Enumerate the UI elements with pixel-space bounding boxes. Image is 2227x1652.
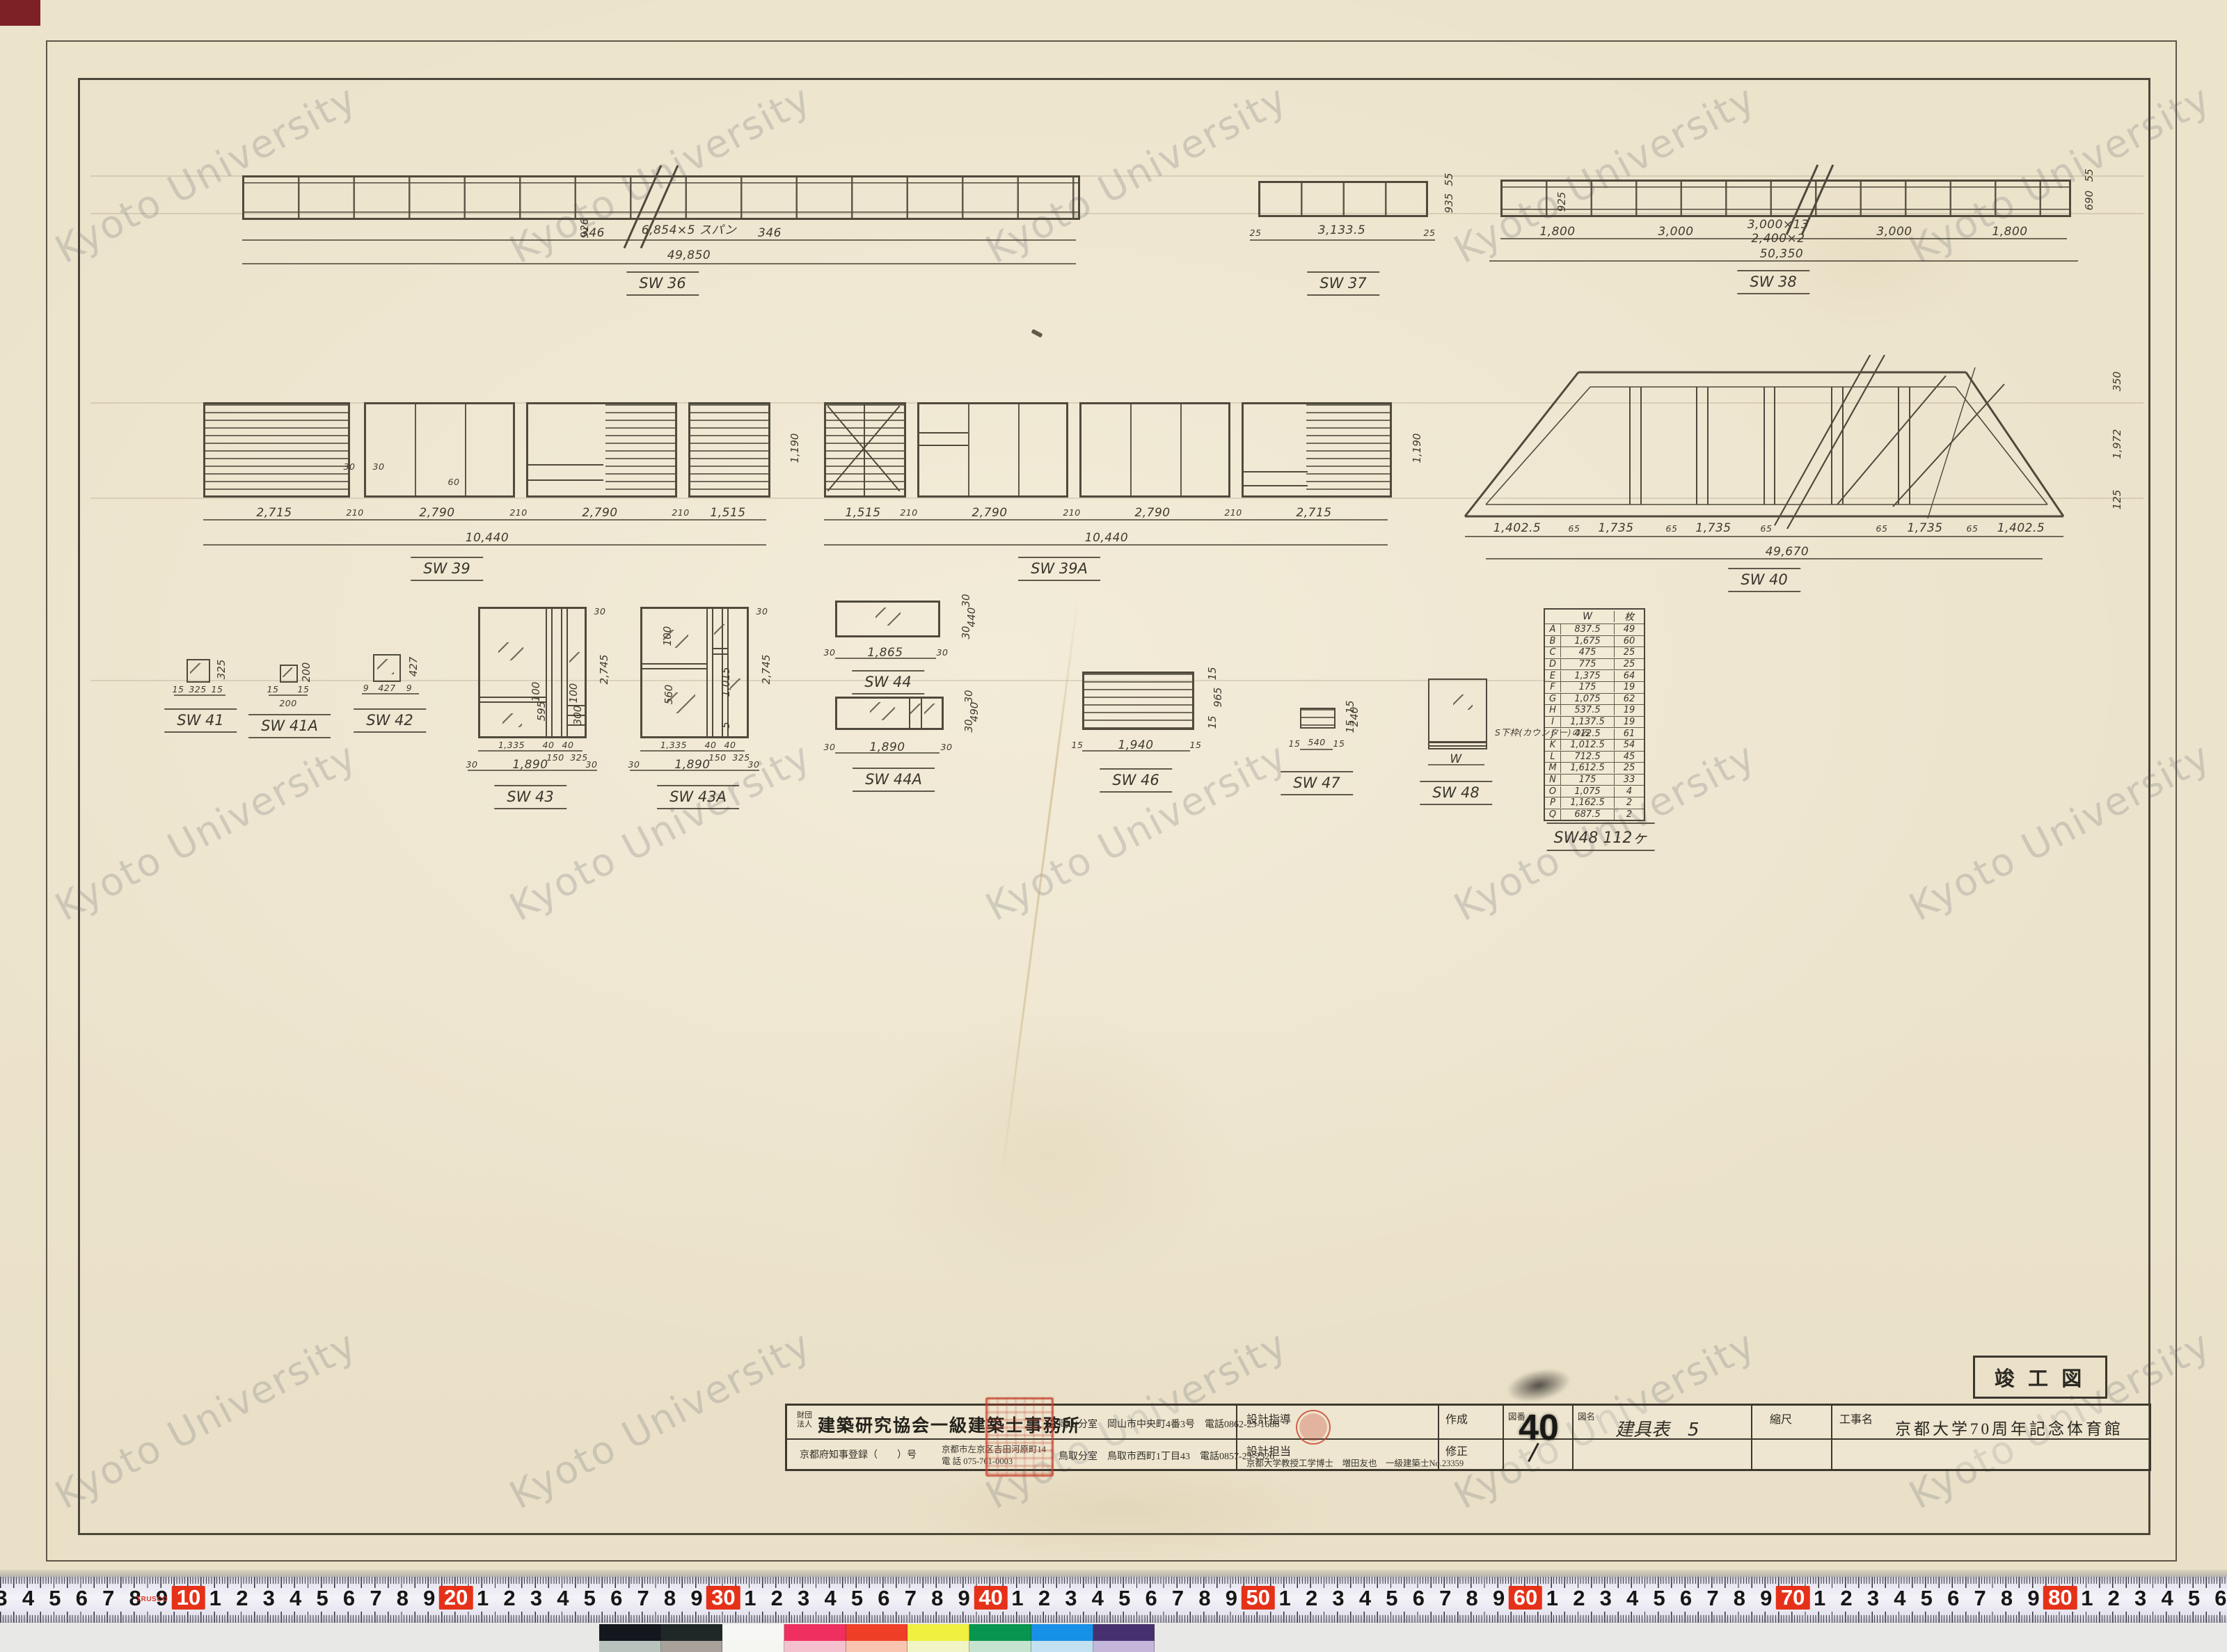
glass-mark <box>870 702 895 720</box>
color-patch <box>846 1624 908 1641</box>
table-cell: A <box>1545 624 1561 635</box>
ruler-number: 5 <box>1921 1587 1933 1610</box>
dimension: 1,972 <box>2111 429 2123 459</box>
dimension: 1,890 <box>674 759 710 772</box>
dimension: 15 <box>1344 720 1356 733</box>
dimension: 2,790 <box>582 507 617 520</box>
dimension-line <box>174 694 225 696</box>
dimension: 15 <box>1072 740 1084 750</box>
ruler-number: 6 <box>343 1587 355 1610</box>
dimension: 5 <box>720 722 732 729</box>
measuring-tape: 3456789101234567892012345678930123456789… <box>0 1577 2227 1623</box>
table-cell: 1,075 <box>1561 694 1615 704</box>
paper-stain <box>870 1009 1232 1301</box>
dimension: 1,865 <box>867 646 903 660</box>
ruler-number: 9 <box>958 1587 970 1610</box>
dimension: 2,790 <box>1134 507 1170 520</box>
dimension: 427 <box>407 657 420 677</box>
dimension: 210 <box>900 508 917 518</box>
dimension: 65 <box>1761 524 1773 534</box>
dimension: 30 <box>594 607 606 617</box>
table-cell: 25 <box>1615 763 1644 773</box>
dimension: 30 <box>962 690 975 703</box>
divider <box>1572 1406 1574 1469</box>
ruler-number: 5 <box>1653 1587 1665 1610</box>
dimension-line <box>1465 536 2063 537</box>
table-cell: 1,075 <box>1561 786 1615 797</box>
dimension: 9 <box>406 683 412 693</box>
table-cell: E <box>1545 671 1561 681</box>
ruler-number: 1 <box>477 1587 489 1610</box>
ruler-number: 7 <box>1974 1587 1986 1610</box>
glass-panel <box>1079 402 1230 498</box>
ruler-number: 9 <box>690 1587 702 1610</box>
dimension: 15 <box>1289 739 1301 749</box>
dimension: 2,400×2 <box>1751 232 1805 246</box>
table-cell: N <box>1545 775 1561 785</box>
mixed-panel <box>526 402 677 498</box>
trapezoid-elevation <box>1448 355 2081 529</box>
dimension: 1,735 <box>1598 522 1633 535</box>
dimension: 200 <box>300 662 312 683</box>
dimension: 325 <box>215 660 228 680</box>
table-cell: Q <box>1545 809 1561 820</box>
table-header-cell: W <box>1561 611 1615 622</box>
table-header-row: W枚 <box>1545 610 1644 624</box>
ruler-number: 6 <box>2214 1587 2226 1610</box>
dimension: 1,015 <box>720 667 732 697</box>
ruler-number: 1 <box>209 1587 221 1610</box>
dimension: 9 <box>363 683 369 693</box>
dimension: 346 <box>581 227 605 240</box>
table-row: P1,162.52 <box>1545 797 1644 809</box>
ruler-number: 4 <box>22 1587 34 1610</box>
glass-panel <box>364 402 515 498</box>
ruler-number: 5 <box>316 1587 328 1610</box>
dimension: 15 <box>298 685 310 694</box>
dimension: 3,000×13 <box>1747 219 1809 232</box>
dimension: 30 <box>628 760 640 770</box>
ruler-number: 5 <box>584 1587 596 1610</box>
dimension-line <box>362 693 419 694</box>
dimension: 40 <box>705 740 717 750</box>
ruler-number: 8 <box>931 1587 943 1610</box>
ruler-decade-number: 40 <box>974 1586 1007 1610</box>
dimension: 1,890 <box>512 759 548 772</box>
color-patch <box>969 1624 1031 1641</box>
dimension: 1,735 <box>1907 522 1942 535</box>
corner-sticker <box>0 0 40 26</box>
drawing-label: SW 47 <box>1281 771 1353 795</box>
color-patch <box>722 1624 784 1641</box>
table-cell: P <box>1545 797 1561 808</box>
dimension: 210 <box>1224 508 1242 518</box>
glass-mark <box>283 667 292 677</box>
ruler-number: 4 <box>557 1587 569 1610</box>
color-patch <box>661 1624 723 1641</box>
dimension: 210 <box>346 508 363 518</box>
ruler-decade-number: 20 <box>439 1586 473 1610</box>
dimension-line <box>1250 239 1435 241</box>
table-cell: O <box>1545 786 1561 797</box>
color-patch <box>722 1641 784 1652</box>
table-cell: 1,375 <box>1561 671 1615 681</box>
drawing-sw40: 350 1,972 125 1,402.5 65 1,735 65 1,735 … <box>1448 327 2192 591</box>
dimension: 65 <box>1876 524 1888 534</box>
table-cell: 54 <box>1615 740 1644 750</box>
table-cell: 775 <box>1561 659 1615 669</box>
dimension: 40 <box>562 740 574 750</box>
ruler-number: 3 <box>1332 1587 1344 1610</box>
table-row: J412.561 <box>1545 727 1644 739</box>
ruler-numbers: 3456789101234567892012345678930123456789… <box>0 1577 2227 1623</box>
table-cell: 1,137.5 <box>1561 717 1615 727</box>
ruler-number: 8 <box>664 1587 676 1610</box>
table-cell: 60 <box>1615 636 1644 646</box>
ruler-number: 2 <box>503 1587 515 1610</box>
schedule-caption: SW48 112ヶ <box>1547 823 1655 851</box>
drawing-sw39a: 1,190 1,515 210 2,790 210 2,790 210 2,71… <box>814 390 1448 591</box>
ruler-number: 1 <box>2081 1587 2093 1610</box>
dimension: 540 <box>1308 738 1325 747</box>
table-cell: I <box>1545 717 1561 727</box>
tape-brand: TRUSCO <box>136 1596 168 1603</box>
dimension: 1,800 <box>1992 225 2027 239</box>
dimension: 15 <box>1206 715 1219 729</box>
color-patch <box>908 1641 969 1652</box>
office-red-stamp <box>985 1397 1054 1477</box>
ruler-number: 4 <box>290 1587 301 1610</box>
ruler-number: 2 <box>1840 1587 1852 1610</box>
louver-panel <box>824 402 906 498</box>
dimension: 2,790 <box>972 507 1007 520</box>
table-cell: 64 <box>1615 671 1644 681</box>
dimension: 15 <box>173 685 184 694</box>
dimension: 2,715 <box>256 507 292 520</box>
ruler-number: 6 <box>1947 1587 1959 1610</box>
ruler-number: 9 <box>1226 1587 1237 1610</box>
tottori-branch: 鳥取分室 鳥取市西町1丁目43 電話0857-23-2320 <box>1059 1449 1274 1463</box>
dimension: 3,000 <box>1876 225 1912 239</box>
drawing-sw46: 15 965 15 15 1,940 15 SW 46 <box>1065 654 1246 800</box>
color-patch <box>969 1641 1031 1652</box>
ruler-number: 3 <box>798 1587 809 1610</box>
table-row: A837.549 <box>1545 624 1644 635</box>
org-prefix-line: 法人 <box>797 1420 812 1429</box>
revised-label: 修正 <box>1445 1442 1468 1459</box>
ruler-number: 3 <box>2134 1587 2146 1610</box>
project-label: 工事名 <box>1839 1410 1873 1427</box>
table-cell: J <box>1545 729 1561 739</box>
color-calibration-row2 <box>599 1641 1155 1652</box>
table-row: C47525 <box>1545 646 1644 658</box>
drawing-sw37: 55 935 25 3,133.5 25 SW 37 <box>1246 167 1475 296</box>
dimension: 210 <box>509 508 527 518</box>
ruler-number: 2 <box>236 1587 248 1610</box>
table-cell: B <box>1545 636 1561 646</box>
color-patch <box>1031 1641 1093 1652</box>
table-row: M1,612.525 <box>1545 762 1644 774</box>
drawing-name-value: 建具表 5 <box>1615 1415 1699 1441</box>
dimension: 30 <box>937 648 949 658</box>
ruler-number: 5 <box>49 1587 61 1610</box>
ruler-number: 5 <box>1118 1587 1130 1610</box>
dimension: 3,000 <box>1658 225 1693 239</box>
drawing-label: SW 41A <box>248 714 331 738</box>
drawing-label: SW 43A <box>657 785 739 809</box>
dimension: 40 <box>724 740 736 750</box>
ruler-number: 3 <box>0 1587 8 1610</box>
table-cell: 19 <box>1615 717 1644 727</box>
glass-mark <box>377 659 394 674</box>
glass-mark <box>190 663 204 676</box>
ruler-number: 3 <box>1065 1587 1077 1610</box>
table-row: G1,07562 <box>1545 693 1644 705</box>
dimension-line <box>478 750 582 752</box>
dimension: 100 <box>530 682 542 702</box>
dimension: 100 <box>567 683 580 704</box>
drawing-sw47: 15 240 15 15 540 15 SW 47 <box>1281 689 1399 800</box>
drawing-sw41a: 200 15 15 200 SW 41A <box>263 646 347 738</box>
color-patch <box>661 1641 723 1652</box>
table-cell: 175 <box>1561 775 1615 785</box>
table-row: E1,37564 <box>1545 669 1644 681</box>
dimension: 1,402.5 <box>1493 522 1541 535</box>
drawing-label: SW 44A <box>853 768 935 792</box>
dimension: 65 <box>1569 524 1580 534</box>
dimension: 55 <box>2083 168 2095 182</box>
dimension: 30 <box>962 719 975 732</box>
ruler-number: 2 <box>1573 1587 1585 1610</box>
table-cell: 175 <box>1561 682 1615 692</box>
sheet-edge-shadow <box>0 1570 2227 1577</box>
ruler-number: 7 <box>905 1587 917 1610</box>
ruler-number: 3 <box>263 1587 275 1610</box>
ruler-number: 8 <box>2001 1587 2013 1610</box>
ruler-number: 9 <box>1493 1587 1505 1610</box>
table-row: H537.519 <box>1545 704 1644 716</box>
glass-mark <box>910 704 921 716</box>
ruler-number: 1 <box>1011 1587 1023 1610</box>
table-cell: G <box>1545 694 1561 704</box>
dimension: 30 <box>960 594 972 607</box>
drawing-label: SW 46 <box>1100 768 1172 793</box>
table-cell: 412.5 <box>1561 729 1615 739</box>
drawing-label: SW 43 <box>494 785 566 809</box>
dimension: 925 <box>1555 192 1568 212</box>
divider <box>1831 1406 1832 1469</box>
table-cell: 19 <box>1615 682 1644 692</box>
dimension: 30 <box>586 760 598 770</box>
created-label: 作成 <box>1445 1410 1468 1427</box>
ruler-number: 6 <box>1680 1587 1692 1610</box>
color-patch <box>846 1641 908 1652</box>
dimension-line <box>242 239 1076 241</box>
dimension: 30 <box>373 462 385 472</box>
table-cell: 49 <box>1615 624 1644 635</box>
ruler-number: 8 <box>1198 1587 1210 1610</box>
dimension: 125 <box>2111 490 2123 510</box>
table-cell: L <box>1545 752 1561 762</box>
table-cell: 25 <box>1615 647 1644 658</box>
table-cell: D <box>1545 659 1561 669</box>
dimension: 3,133.5 <box>1318 224 1365 237</box>
ruler-number: 5 <box>2188 1587 2200 1610</box>
dimension: 100 <box>661 626 674 646</box>
fitting-schedule-table: W枚A837.549B1,67560C47525D77525E1,37564F1… <box>1544 608 1645 821</box>
table-cell: K <box>1545 740 1561 750</box>
dimension-line <box>242 263 1076 264</box>
door-frame <box>640 607 749 738</box>
glass-mark <box>1453 694 1473 710</box>
drawing-label: SW 38 <box>1737 270 1809 294</box>
ruler-number: 4 <box>1626 1587 1638 1610</box>
color-patch <box>784 1641 846 1652</box>
org-prefix: 財団 法人 <box>797 1411 812 1429</box>
design-supervision-label: 設計指導 <box>1246 1410 1291 1427</box>
table-cell: H <box>1545 705 1561 715</box>
table-row: F17519 <box>1545 681 1644 693</box>
ruler-decade-number: 60 <box>1509 1586 1542 1610</box>
ruler-number: 6 <box>76 1587 88 1610</box>
dimension: 25 <box>1250 228 1262 238</box>
table-row: N17533 <box>1545 774 1644 786</box>
ruler-number: 6 <box>610 1587 622 1610</box>
table-cell: M <box>1545 763 1561 773</box>
ruler-number: 1 <box>1814 1587 1825 1610</box>
drawing-label: SW 37 <box>1307 271 1379 296</box>
ruler-number: 8 <box>1734 1587 1745 1610</box>
ruler-number: 4 <box>1894 1587 1905 1610</box>
dimension: 346 <box>758 227 782 240</box>
dimension-total: 50,350 <box>1760 248 1803 261</box>
ruler-number: 3 <box>1867 1587 1879 1610</box>
table-row: Q687.52 <box>1545 809 1644 820</box>
table-cell: 712.5 <box>1561 752 1615 762</box>
table-cell: 1,162.5 <box>1561 797 1615 808</box>
dimension: 1,890 <box>869 741 905 754</box>
table-cell: 2 <box>1615 809 1644 820</box>
divider <box>1751 1406 1752 1469</box>
ruler-number: 1 <box>744 1587 756 1610</box>
color-patch <box>784 1624 846 1641</box>
dimension: 30 <box>466 760 478 770</box>
ruler-number: 3 <box>530 1587 542 1610</box>
dimension: 690 <box>2083 191 2095 211</box>
dimension-total: 49,670 <box>1766 546 1809 559</box>
color-patch <box>1031 1624 1093 1641</box>
dimension: 350 <box>2111 372 2123 392</box>
ruler-number: 4 <box>824 1587 836 1610</box>
dimension-total: 200 <box>279 699 296 708</box>
dimension: 300 <box>571 706 584 726</box>
dimension-line <box>1486 558 2043 559</box>
table-cell: 33 <box>1615 775 1644 785</box>
color-calibration-row1 <box>599 1624 1155 1641</box>
ruler-number: 2 <box>771 1587 783 1610</box>
drawing-sw42: 427 9 427 9 SW 42 <box>354 632 451 736</box>
dimension: 15 <box>1206 667 1219 680</box>
org-prefix-line: 財団 <box>797 1411 812 1420</box>
table-cell: 475 <box>1561 647 1615 658</box>
ruler-number: 5 <box>851 1587 863 1610</box>
completion-drawing-stamp: 竣 工 図 <box>1973 1356 2107 1399</box>
dimension: 1,940 <box>1118 739 1153 752</box>
dimension: 65 <box>1967 524 1979 534</box>
dimension: 1,800 <box>1539 225 1575 239</box>
dimension: 1,335 <box>498 740 525 750</box>
table-cell: 62 <box>1615 694 1644 704</box>
table-row: L712.545 <box>1545 751 1644 763</box>
glass-mark <box>875 607 901 626</box>
table-cell: 1,012.5 <box>1561 740 1615 750</box>
ruler-number: 4 <box>1092 1587 1104 1610</box>
dimension-total: 10,440 <box>466 532 509 545</box>
ruler-number: 3 <box>1600 1587 1612 1610</box>
dimension: 15 <box>267 685 279 694</box>
ruler-decade-number: 50 <box>1242 1586 1275 1610</box>
drawing-sw36: 926 346 6,854×5 スパン 346 49,850 SW 36 <box>209 167 1127 296</box>
ruler-number: 8 <box>397 1587 409 1610</box>
glass-panel <box>917 402 1068 498</box>
drawing-sw43a: 30 2,745 100 560 1,015 5 1,335 40 40 150… <box>623 591 786 807</box>
drawing-sw43: 30 2,745 100 595 100 300 1,335 40 40 150… <box>459 591 623 807</box>
louver-panel <box>688 402 770 498</box>
scale-label: 縮尺 <box>1770 1410 1792 1427</box>
table-cell: 687.5 <box>1561 809 1615 820</box>
table-row: B1,67560 <box>1545 635 1644 647</box>
dimension: 1,190 <box>788 434 801 463</box>
dimension-line <box>640 750 745 752</box>
drawing-label: SW 36 <box>626 271 699 296</box>
dimension: 6,854×5 スパン <box>642 224 736 237</box>
glass-mark <box>924 704 935 716</box>
window-elevation <box>1258 181 1428 217</box>
dimension: 325 <box>189 685 206 694</box>
dimension: 15 <box>1333 739 1345 749</box>
paper-stain <box>905 1461 1336 1559</box>
color-patch <box>1093 1641 1155 1652</box>
dimension: 30 <box>941 742 953 752</box>
dimension: 30 <box>824 648 836 658</box>
ruler-decade-number: 80 <box>2043 1586 2077 1610</box>
dimension: 427 <box>378 683 395 693</box>
mixed-panel <box>1242 402 1392 498</box>
dimension: 1,515 <box>710 507 745 520</box>
project-name: 京都大学70周年記念体育館 <box>1895 1415 2123 1439</box>
dimension: 30 <box>748 760 760 770</box>
ruler-number: 9 <box>1760 1587 1772 1610</box>
dimension: 595 <box>535 701 548 722</box>
drawing-label: SW 42 <box>354 708 426 733</box>
ruler-decade-number: 10 <box>172 1586 205 1610</box>
ruler-number: 6 <box>1145 1587 1157 1610</box>
dimension: 1,190 <box>1411 434 1423 463</box>
ruler-number: 9 <box>2027 1587 2039 1610</box>
supervision-seal <box>1296 1410 1331 1445</box>
ruler-number: 7 <box>1172 1587 1184 1610</box>
ruler-number: 7 <box>102 1587 114 1610</box>
dimension: 150 <box>546 753 564 763</box>
ruler-number: 7 <box>370 1587 381 1610</box>
drawing-number: 40 <box>1519 1407 1559 1449</box>
ruler-decade-number: 30 <box>706 1586 740 1610</box>
table-cell: 25 <box>1615 659 1644 669</box>
ruler-decade-number: 70 <box>1776 1586 1809 1610</box>
dimension: 150 <box>708 753 726 763</box>
dimension: 2,715 <box>1296 507 1331 520</box>
dimension: 60 <box>448 477 460 487</box>
